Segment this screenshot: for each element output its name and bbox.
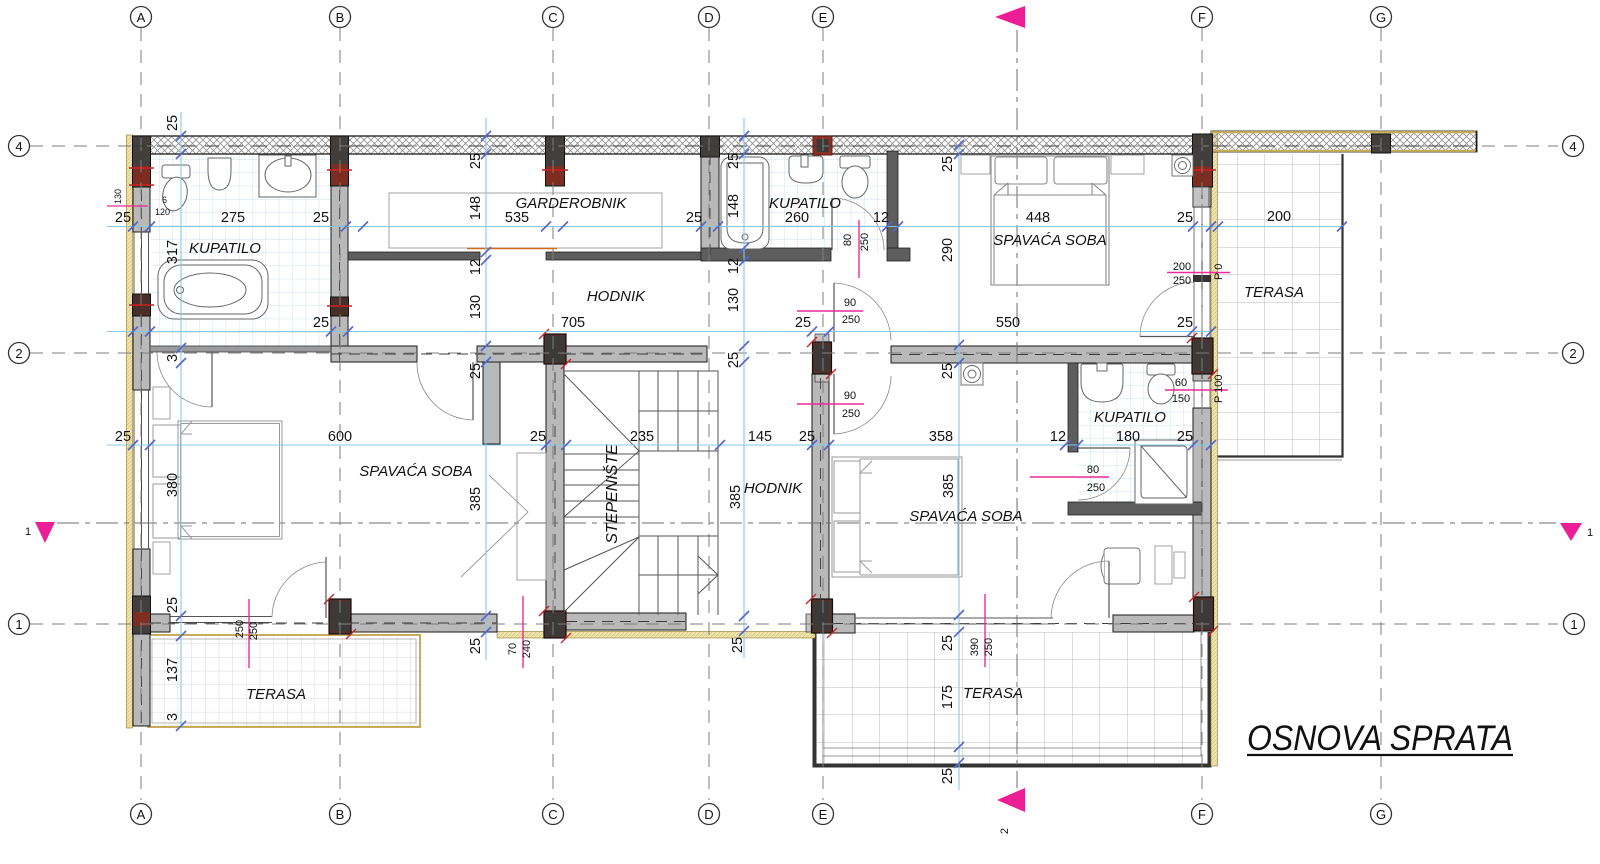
svg-text:E: E [819, 10, 828, 25]
svg-text:148: 148 [726, 194, 742, 218]
svg-text:148: 148 [468, 196, 484, 220]
svg-text:290: 290 [940, 238, 956, 262]
svg-text:358: 358 [929, 429, 953, 445]
svg-text:275: 275 [221, 210, 245, 226]
svg-text:250: 250 [842, 408, 860, 420]
svg-text:250: 250 [1173, 275, 1191, 287]
svg-text:C: C [548, 10, 557, 25]
svg-text:SPAVAĆA SOBA: SPAVAĆA SOBA [993, 232, 1106, 249]
svg-text:1: 1 [1587, 527, 1593, 539]
svg-text:250: 250 [842, 314, 860, 326]
svg-text:550: 550 [996, 315, 1020, 331]
svg-text:317: 317 [165, 240, 181, 264]
svg-text:200: 200 [1267, 209, 1291, 225]
svg-text:130: 130 [468, 295, 484, 319]
svg-text:KUPATILO: KUPATILO [189, 240, 261, 257]
svg-text:90: 90 [844, 390, 856, 402]
svg-text:12: 12 [1050, 429, 1066, 445]
svg-text:P 0: P 0 [1213, 264, 1225, 280]
svg-text:25: 25 [940, 635, 956, 651]
svg-text:F: F [1198, 10, 1206, 25]
svg-text:535: 535 [505, 210, 529, 226]
svg-text:G: G [1376, 807, 1386, 822]
svg-text:25: 25 [940, 156, 956, 172]
svg-text:80: 80 [1087, 464, 1099, 476]
svg-text:380: 380 [165, 473, 181, 497]
svg-text:25: 25 [1177, 210, 1193, 226]
svg-text:180: 180 [1116, 429, 1140, 445]
svg-text:25: 25 [468, 363, 484, 379]
svg-text:G: G [1376, 10, 1386, 25]
svg-text:260: 260 [785, 210, 809, 226]
svg-text:2: 2 [1569, 346, 1576, 361]
svg-text:385: 385 [941, 474, 957, 498]
svg-text:25: 25 [726, 153, 742, 169]
svg-text:130: 130 [726, 288, 742, 312]
svg-text:GARDEROBNIK: GARDEROBNIK [516, 195, 628, 212]
svg-text:25: 25 [165, 115, 181, 131]
svg-text:150: 150 [1172, 393, 1190, 405]
svg-text:B: B [336, 807, 345, 822]
svg-text:385: 385 [728, 485, 744, 509]
svg-text:SPAVAĆA SOBA: SPAVAĆA SOBA [359, 463, 472, 480]
svg-text:STEPENIŠTE: STEPENIŠTE [602, 444, 621, 544]
svg-text:70: 70 [507, 643, 519, 655]
svg-text:385: 385 [468, 487, 484, 511]
svg-text:25: 25 [726, 352, 742, 368]
svg-text:448: 448 [1026, 210, 1050, 226]
svg-text:25: 25 [940, 363, 956, 379]
svg-text:600: 600 [328, 429, 352, 445]
svg-text:25: 25 [530, 429, 546, 445]
svg-text:25: 25 [468, 153, 484, 169]
svg-text:705: 705 [561, 315, 585, 331]
svg-text:SPAVAĆA SOBA: SPAVAĆA SOBA [909, 508, 1022, 525]
svg-text:P 100: P 100 [1213, 374, 1225, 403]
svg-text:E: E [819, 807, 828, 822]
svg-text:60: 60 [1175, 377, 1187, 389]
svg-text:D: D [704, 10, 713, 25]
svg-text:25: 25 [1177, 429, 1193, 445]
svg-text:F: F [1198, 807, 1206, 822]
svg-text:250: 250 [983, 638, 995, 656]
svg-text:25: 25 [730, 637, 746, 653]
svg-text:3: 3 [165, 354, 181, 362]
svg-text:B: B [336, 10, 345, 25]
svg-text:80: 80 [842, 234, 854, 246]
svg-text:4: 4 [1569, 139, 1576, 154]
svg-text:OSNOVA SPRATA: OSNOVA SPRATA [1247, 718, 1513, 758]
svg-text:HODNIK: HODNIK [587, 288, 646, 305]
svg-text:250: 250 [234, 620, 246, 638]
svg-text:12: 12 [468, 259, 484, 275]
svg-text:3: 3 [165, 713, 181, 721]
svg-text:250: 250 [248, 622, 260, 640]
svg-text:25: 25 [115, 429, 131, 445]
svg-text:25: 25 [940, 768, 956, 784]
svg-text:TERASA: TERASA [1244, 284, 1304, 301]
svg-text:KUPATILO: KUPATILO [769, 195, 841, 212]
svg-text:390: 390 [969, 638, 981, 656]
svg-text:12: 12 [873, 210, 889, 226]
svg-text:A: A [137, 807, 146, 822]
svg-text:200: 200 [1173, 261, 1191, 273]
svg-text:A: A [137, 10, 146, 25]
svg-text:HODNIK: HODNIK [744, 480, 803, 497]
svg-text:25: 25 [313, 210, 329, 226]
svg-text:25: 25 [795, 315, 811, 331]
svg-text:C: C [548, 807, 557, 822]
svg-text:TERASA: TERASA [246, 686, 306, 703]
svg-text:4: 4 [15, 139, 22, 154]
svg-text:1: 1 [25, 526, 31, 538]
svg-text:6: 6 [162, 195, 167, 205]
svg-text:250: 250 [1087, 482, 1105, 494]
svg-text:25: 25 [165, 597, 181, 613]
svg-text:KUPATILO: KUPATILO [1094, 409, 1166, 426]
svg-text:25: 25 [1177, 315, 1193, 331]
svg-text:1: 1 [1570, 617, 1577, 632]
svg-text:137: 137 [165, 658, 181, 682]
svg-text:240: 240 [521, 640, 533, 658]
svg-text:250: 250 [859, 233, 871, 251]
svg-text:TERASA: TERASA [963, 685, 1023, 702]
svg-text:25: 25 [115, 210, 131, 226]
svg-text:2: 2 [15, 346, 22, 361]
svg-text:D: D [704, 807, 713, 822]
svg-text:145: 145 [748, 429, 772, 445]
svg-text:2: 2 [999, 828, 1011, 834]
svg-text:25: 25 [799, 429, 815, 445]
svg-text:25: 25 [468, 638, 484, 654]
svg-text:90: 90 [844, 297, 856, 309]
svg-text:175: 175 [940, 685, 956, 709]
svg-text:120: 120 [155, 207, 170, 217]
svg-text:1: 1 [15, 617, 22, 632]
svg-text:25: 25 [313, 315, 329, 331]
svg-text:130: 130 [113, 189, 123, 204]
svg-text:12: 12 [726, 258, 742, 274]
svg-text:235: 235 [630, 429, 654, 445]
svg-text:25: 25 [686, 210, 702, 226]
